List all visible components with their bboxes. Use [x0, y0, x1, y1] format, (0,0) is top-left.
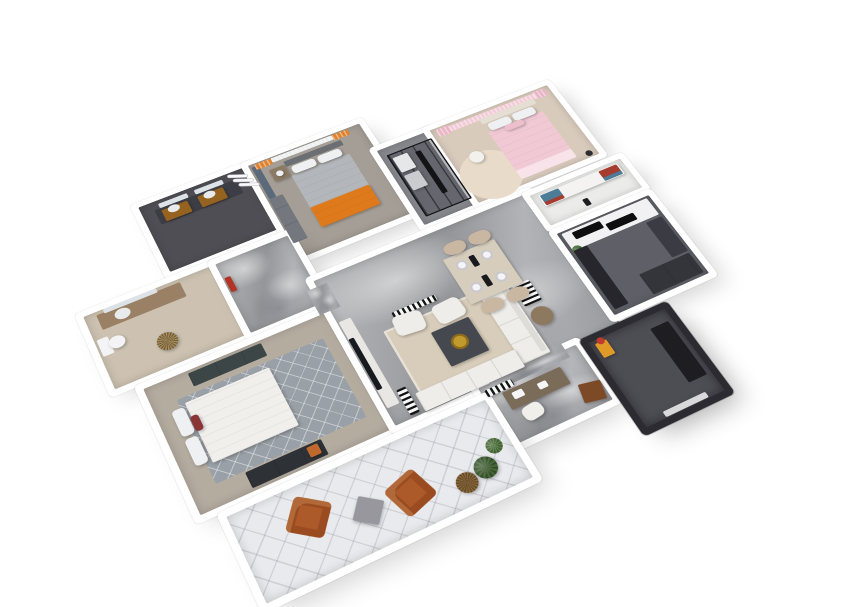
balcony-side-table	[353, 496, 385, 525]
apartment-plan	[16, 64, 832, 607]
floorplan-render	[0, 0, 844, 607]
